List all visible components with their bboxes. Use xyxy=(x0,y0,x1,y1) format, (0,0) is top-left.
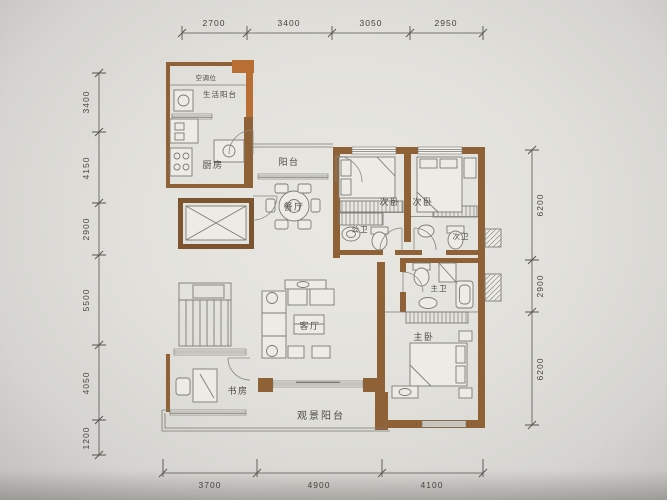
label-kitchen: 厨房 xyxy=(202,159,223,170)
window-study-bottom xyxy=(170,410,246,415)
dim-left-4: 5500 xyxy=(81,289,91,312)
dim-top-3: 3050 xyxy=(360,18,383,28)
bed-bedroom-left xyxy=(339,157,395,198)
label-living: 客厅 xyxy=(299,320,320,331)
label-bedroom-left: 次卧 xyxy=(379,196,400,207)
label-balcony: 阳台 xyxy=(278,156,299,167)
window-kitchen-balcony xyxy=(172,114,212,119)
label-study: 书房 xyxy=(227,385,248,396)
wardrobe-master xyxy=(406,312,468,323)
balcony-top-railing xyxy=(252,144,333,147)
label-bath-public: 公卫 xyxy=(352,225,369,234)
dim-right-3: 6200 xyxy=(535,358,545,381)
stairs xyxy=(179,283,231,346)
dim-bottom-1: 3700 xyxy=(199,480,222,490)
label-view-balcony: 观景阳台 xyxy=(297,409,345,422)
ac-platform-1 xyxy=(485,229,501,247)
label-ac-unit: 空调位 xyxy=(196,73,217,82)
label-service-balcony: 生活阳台 xyxy=(203,89,237,99)
dim-bottom-3: 4100 xyxy=(421,480,444,490)
window-bedroom-right xyxy=(418,147,462,154)
dim-top-1: 2700 xyxy=(203,18,226,28)
dim-left-1: 3400 xyxy=(81,91,91,114)
ac-platforms xyxy=(485,229,501,301)
dim-top-2: 3400 xyxy=(278,18,301,28)
label-bedroom-right: 次卧 xyxy=(412,196,433,207)
dim-top-4: 2950 xyxy=(435,18,458,28)
window-study-top xyxy=(174,349,246,355)
dim-left-2: 4150 xyxy=(81,157,91,180)
washer xyxy=(174,90,193,111)
dimension-bottom: 3700 4900 4100 xyxy=(159,459,487,490)
floor-plan-photo: 2700 3400 3050 2950 3400 4150 2900 5500 … xyxy=(0,0,667,500)
dim-right-1: 6200 xyxy=(535,194,545,217)
dim-right-2: 2900 xyxy=(535,275,545,298)
dim-left-5: 4050 xyxy=(81,372,91,395)
elevator xyxy=(186,206,246,240)
slider-living-balcony xyxy=(273,381,363,387)
window-bedroom-left xyxy=(352,147,396,154)
door-study xyxy=(228,358,250,380)
label-bath-second: 次卫 xyxy=(453,231,470,241)
ac-platform-2 xyxy=(485,274,501,301)
dim-bottom-2: 4900 xyxy=(308,480,331,490)
slider-dining-balcony xyxy=(258,174,328,179)
label-dining: 餐厅 xyxy=(283,201,304,212)
dim-left-6: 1200 xyxy=(81,427,91,450)
label-bedroom-master: 主卧 xyxy=(413,331,434,342)
dimension-right: 6200 2900 6200 xyxy=(525,146,545,429)
vanity-public-bath xyxy=(339,213,383,225)
window-master-bedroom xyxy=(422,421,466,427)
label-bath-master: 主卫 xyxy=(431,283,448,293)
study-desk xyxy=(176,369,217,402)
dimension-left: 3400 4150 2900 5500 4050 1200 xyxy=(81,69,106,459)
dimension-top: 2700 3400 3050 2950 xyxy=(178,18,487,40)
floor-plan-drawing: 2700 3400 3050 2950 3400 4150 2900 5500 … xyxy=(0,0,667,500)
living-room-set xyxy=(262,280,334,358)
dim-left-3: 2900 xyxy=(81,218,91,241)
